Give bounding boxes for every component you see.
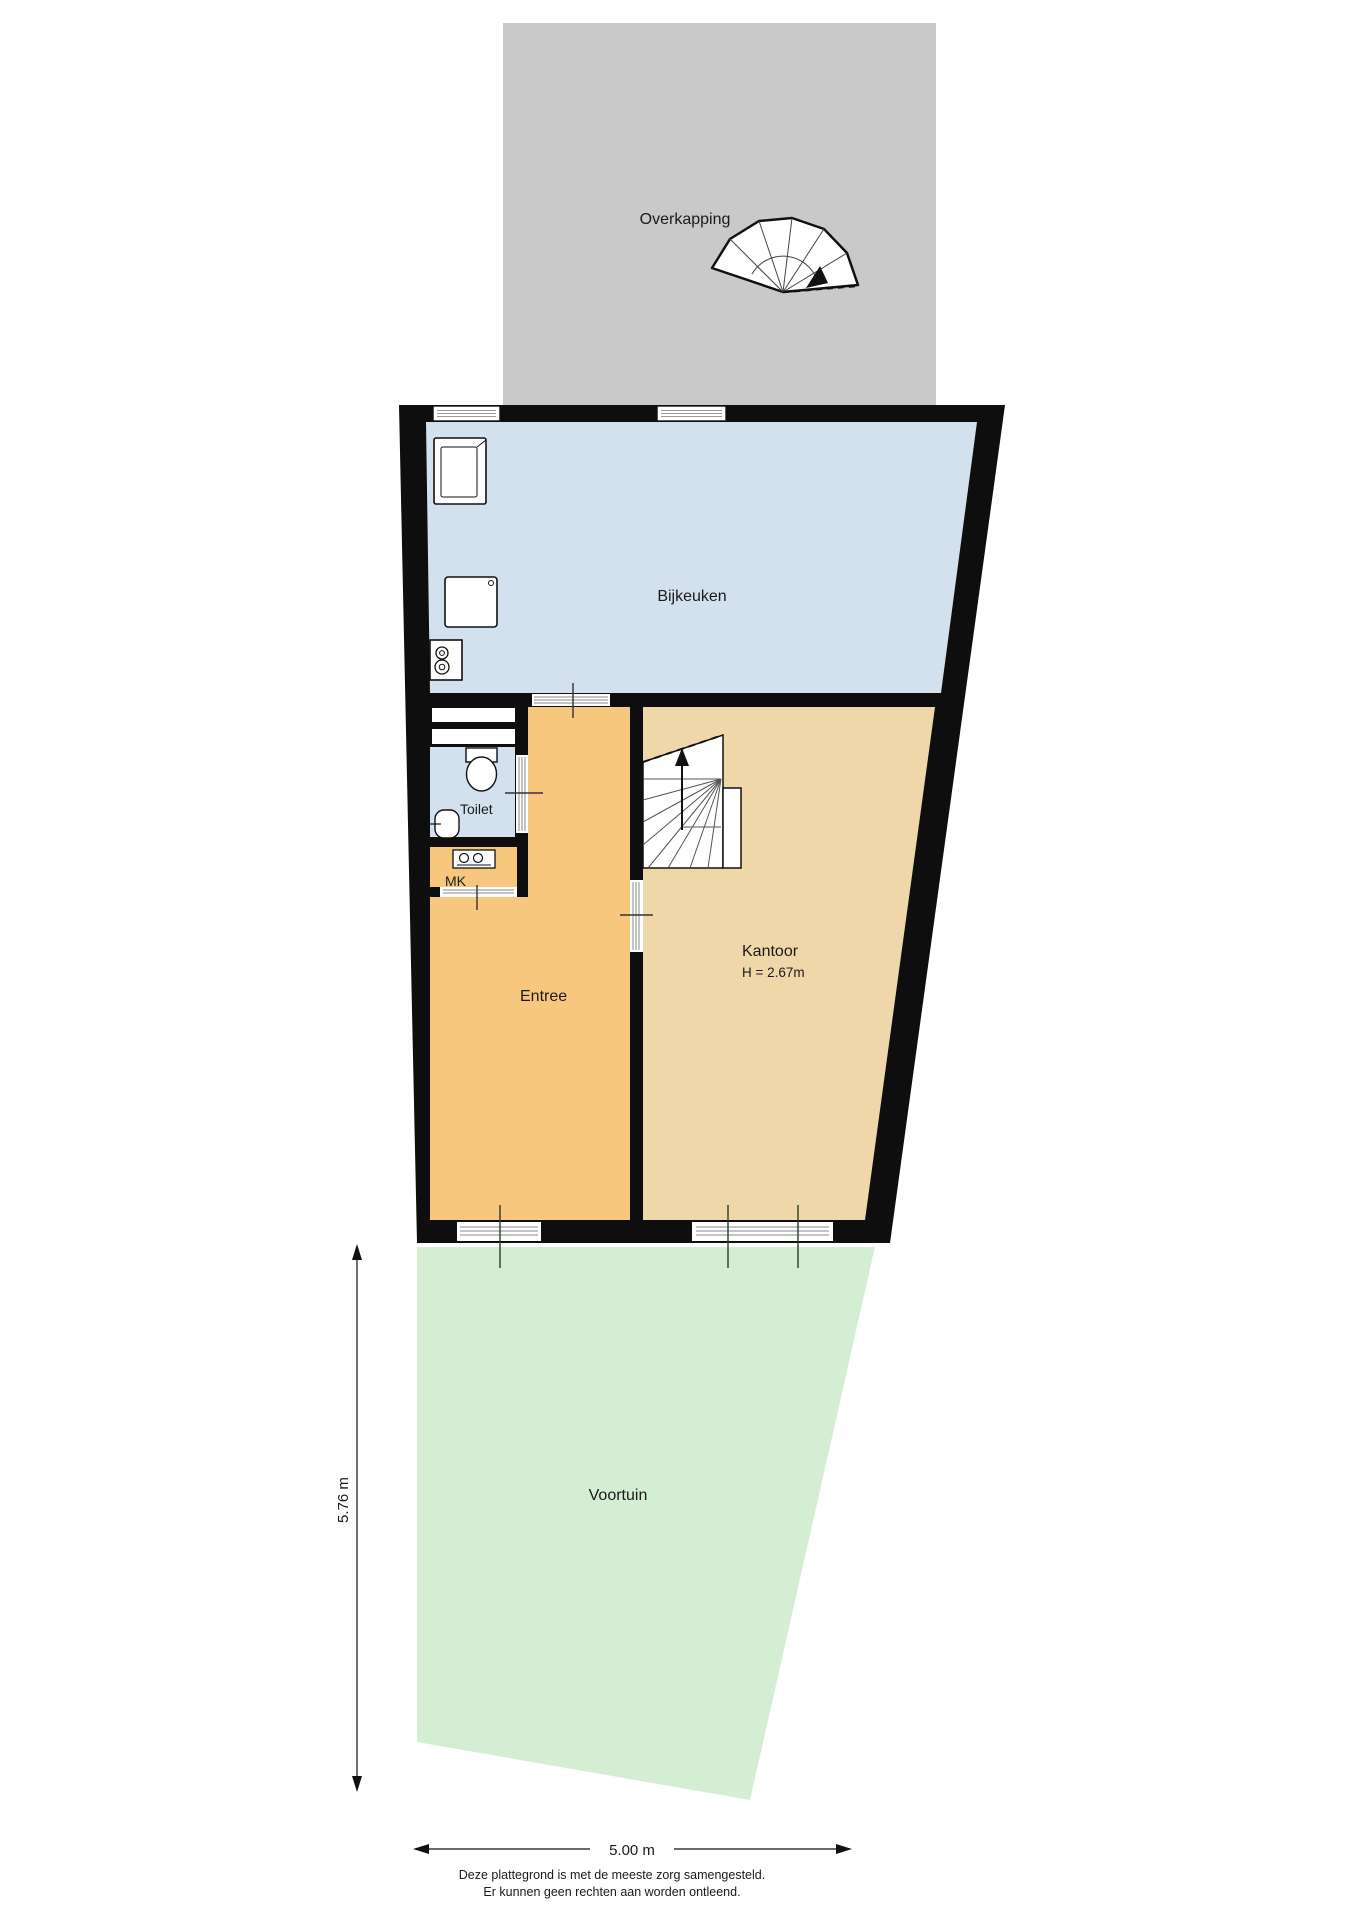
toilet-icon: [466, 748, 497, 791]
meter-box-icon: [453, 850, 495, 868]
kantoor-height-label: H = 2.67m: [742, 965, 805, 980]
voortuin-area: [417, 1247, 875, 1800]
floorplan-page: Overkapping Voortuin: [0, 0, 1358, 1920]
toilet-niche-icon: [432, 729, 515, 744]
toilet-label: Toilet: [460, 801, 493, 817]
bijkeuken-label: Bijkeuken: [657, 588, 726, 605]
mk-label: MK: [445, 873, 467, 889]
kantoor-label: Kantoor: [742, 943, 799, 960]
width-dimension-label: 5.00 m: [609, 1842, 655, 1859]
floorplan-drawing: Overkapping Voortuin: [0, 0, 1358, 1920]
disclaimer-line1: Deze plattegrond is met de meeste zorg s…: [459, 1868, 765, 1882]
width-dimension: 5.00 m: [413, 1842, 852, 1859]
disclaimer-line2: Er kunnen geen rechten aan worden ontlee…: [483, 1885, 740, 1899]
rear-window-2-icon: [657, 406, 726, 421]
washer-icon: [445, 577, 497, 627]
depth-dimension-label: 5.76 m: [335, 1477, 352, 1523]
depth-dimension: 5.76 m: [335, 1244, 362, 1792]
overkapping-label: Overkapping: [640, 211, 731, 228]
entree-label: Entree: [520, 988, 567, 1005]
fridge-icon: [434, 438, 486, 504]
bijkeuken-room: [426, 422, 977, 693]
toilet-niche-icon: [432, 708, 515, 722]
boiler-icon: [430, 640, 462, 680]
voortuin-label: Voortuin: [589, 1487, 648, 1504]
rear-window-1-icon: [433, 406, 500, 421]
